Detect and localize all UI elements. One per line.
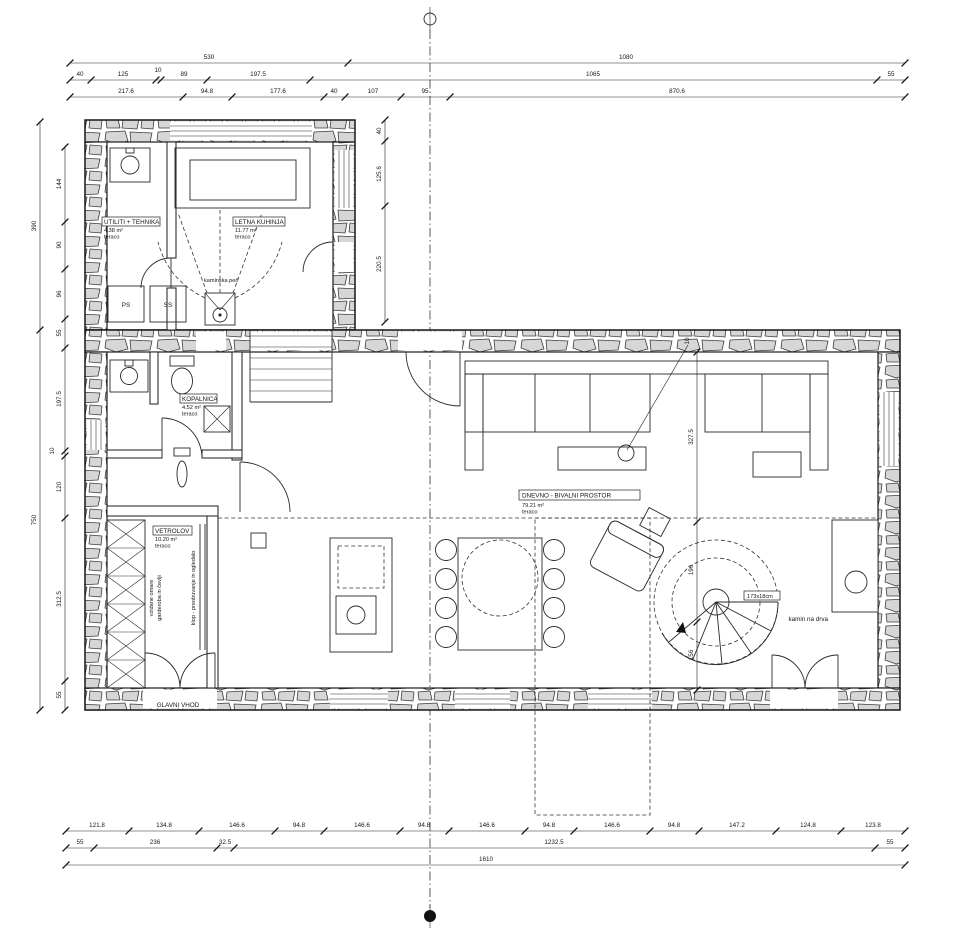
armchair bbox=[588, 519, 665, 593]
room-name: KOPALNICA bbox=[182, 396, 218, 403]
dim-label: 125 bbox=[118, 71, 129, 78]
dim-label: 197.5 bbox=[250, 71, 266, 78]
bottom-dimension-lines: 121.8 134.8 146.6 94.8 146.6 94.8 146.6 … bbox=[63, 822, 909, 868]
wardrobe-note-line1: vzidane omare bbox=[149, 580, 155, 617]
interior-dimension-lines: 10 327.5 196 156 bbox=[684, 337, 700, 693]
dim-label: 94.8 bbox=[201, 88, 214, 95]
light-leader bbox=[618, 345, 688, 461]
dim-label: 1610 bbox=[479, 856, 494, 863]
dim-label: 146.6 bbox=[354, 822, 370, 829]
room-area: 4.52 m² bbox=[182, 405, 201, 411]
dim-label: 10 bbox=[684, 337, 691, 345]
spiral-stair-label: 173x18cm bbox=[747, 594, 773, 600]
room-name: LETNA KUHINJA bbox=[235, 219, 284, 226]
room-kopalnica: KOPALNICA 4.52 m² teraco bbox=[110, 356, 230, 487]
dim-label: 95 bbox=[421, 88, 429, 95]
room-dnevno: 173x18cm kamin na drva DNEVNO - BIVALNI … bbox=[218, 345, 878, 815]
dim-label: 1232.5 bbox=[544, 839, 564, 846]
dim-label: 1080 bbox=[619, 54, 634, 61]
room-floor: teraco bbox=[104, 235, 120, 241]
door-corridor bbox=[240, 462, 290, 512]
dim-label: 40 bbox=[330, 88, 338, 95]
top-dimension-lines: 530 1080 40 125 10 89 197.5 1065 55 217.… bbox=[67, 54, 909, 100]
spiral-stair: 173x18cm bbox=[654, 540, 780, 665]
floor-plan-canvas: 530 1080 40 125 10 89 197.5 1065 55 217.… bbox=[0, 0, 960, 934]
room-floor: teraco bbox=[155, 544, 171, 550]
left-dimension-ticks bbox=[37, 119, 69, 714]
dim-label: 40 bbox=[76, 71, 84, 78]
dim-label: 123.8 bbox=[865, 822, 881, 829]
room-floor: teraco bbox=[522, 510, 538, 516]
dining-table bbox=[436, 538, 565, 650]
wood-fireplace: kamin na drva bbox=[788, 520, 878, 623]
side-table bbox=[753, 452, 801, 477]
dim-label: 94.8 bbox=[543, 822, 556, 829]
door-wing-side bbox=[303, 242, 333, 272]
room-name: DNEVNO - BIVALNI PROSTOR bbox=[522, 493, 611, 500]
floor-plan-drawing: 530 1080 40 125 10 89 197.5 1065 55 217.… bbox=[0, 0, 960, 934]
dim-label: 327.5 bbox=[688, 429, 695, 445]
section-line bbox=[424, 7, 436, 928]
dim-label: 312.5 bbox=[56, 591, 63, 607]
dim-label: 124.8 bbox=[800, 822, 816, 829]
dim-label: 125.6 bbox=[376, 166, 383, 182]
room-area: 10.20 m² bbox=[155, 537, 177, 543]
room-vetrolov: vzidane omare garderoba in čevlji klop -… bbox=[107, 520, 266, 709]
ottoman bbox=[640, 508, 671, 537]
room-area: 79.21 m² bbox=[522, 503, 544, 509]
dim-label: 144 bbox=[56, 178, 63, 189]
dim-label: 217.6 bbox=[118, 88, 134, 95]
dim-label: 96 bbox=[56, 290, 63, 298]
dim-label: 146.6 bbox=[229, 822, 245, 829]
dim-label: 94.8 bbox=[668, 822, 681, 829]
dim-label: 55 bbox=[56, 329, 63, 337]
stove-label: kaminska peč bbox=[204, 278, 238, 284]
room-floor: teraco bbox=[182, 412, 198, 418]
dim-label: 147.2 bbox=[729, 822, 745, 829]
door-living-top bbox=[406, 352, 460, 406]
dim-label: 55 bbox=[56, 691, 63, 699]
room-name: UTILITI + TEHNIKA bbox=[104, 219, 160, 226]
washer-label: PS bbox=[122, 302, 130, 309]
dim-label: 177.6 bbox=[270, 88, 286, 95]
door-terrace-double bbox=[772, 655, 838, 688]
kitchen-island bbox=[330, 538, 392, 652]
bench-note: klop - preobuvanje in ogledalo bbox=[191, 551, 197, 626]
dim-label: 120 bbox=[56, 481, 63, 492]
dryer-label: SS bbox=[164, 302, 172, 309]
coffee-table bbox=[558, 447, 646, 470]
room-floor: teraco bbox=[235, 235, 251, 241]
wardrobe-note-line2: garderoba in čevlji bbox=[157, 575, 163, 620]
dim-label: 196 bbox=[688, 564, 695, 575]
dim-label: 134.8 bbox=[156, 822, 172, 829]
sofa-group bbox=[465, 361, 828, 477]
left-dimension-lines: 390 750 144 90 96 55 197.5 10 120 312.5 … bbox=[31, 119, 68, 714]
main-entrance-label: GLAVNI VHOD bbox=[157, 702, 200, 709]
utility-symbol-box bbox=[251, 533, 266, 548]
dim-label: 156 bbox=[688, 649, 695, 660]
dim-label: 10 bbox=[49, 447, 56, 455]
dim-label: 55 bbox=[886, 839, 894, 846]
dim-label: 236 bbox=[150, 839, 161, 846]
loft-outline-dashed bbox=[535, 518, 650, 815]
dim-label: 55 bbox=[887, 71, 895, 78]
dim-label: 390 bbox=[31, 220, 38, 231]
dim-label: 146.6 bbox=[479, 822, 495, 829]
dim-label: 89 bbox=[180, 71, 188, 78]
dim-label: 750 bbox=[31, 514, 38, 525]
dim-label: 530 bbox=[204, 54, 215, 61]
door-bathroom bbox=[162, 418, 202, 458]
room-letna-kuhinja: kaminska peč LETNA KUHINJA 11.77 m² tera… bbox=[158, 148, 310, 325]
room-area: 4.38 m² bbox=[104, 228, 123, 234]
wing-dimension-lines: 40 125.6 220.5 bbox=[376, 117, 388, 326]
dim-label: 55 bbox=[76, 839, 84, 846]
dim-label: 1065 bbox=[586, 71, 601, 78]
dim-label: 94.8 bbox=[293, 822, 306, 829]
doors bbox=[141, 242, 838, 688]
dim-label: 121.8 bbox=[89, 822, 105, 829]
room-area: 11.77 m² bbox=[235, 228, 257, 234]
dim-label: 32.5 bbox=[219, 839, 232, 846]
dim-label: 40 bbox=[376, 127, 383, 135]
dim-label: 870.6 bbox=[669, 88, 685, 95]
room-name: VETROLOV bbox=[155, 528, 190, 535]
dim-label: 94.8 bbox=[418, 822, 431, 829]
fireplace-label: kamin na drva bbox=[788, 616, 828, 623]
dim-label: 220.5 bbox=[376, 256, 383, 272]
dim-label: 10 bbox=[154, 67, 162, 74]
dim-label: 146.6 bbox=[604, 822, 620, 829]
dim-label: 107 bbox=[368, 88, 379, 95]
stone-stove bbox=[205, 293, 235, 325]
door-entrance-double bbox=[145, 653, 215, 688]
dim-label: 197.5 bbox=[56, 391, 63, 407]
dim-label: 90 bbox=[56, 241, 63, 249]
